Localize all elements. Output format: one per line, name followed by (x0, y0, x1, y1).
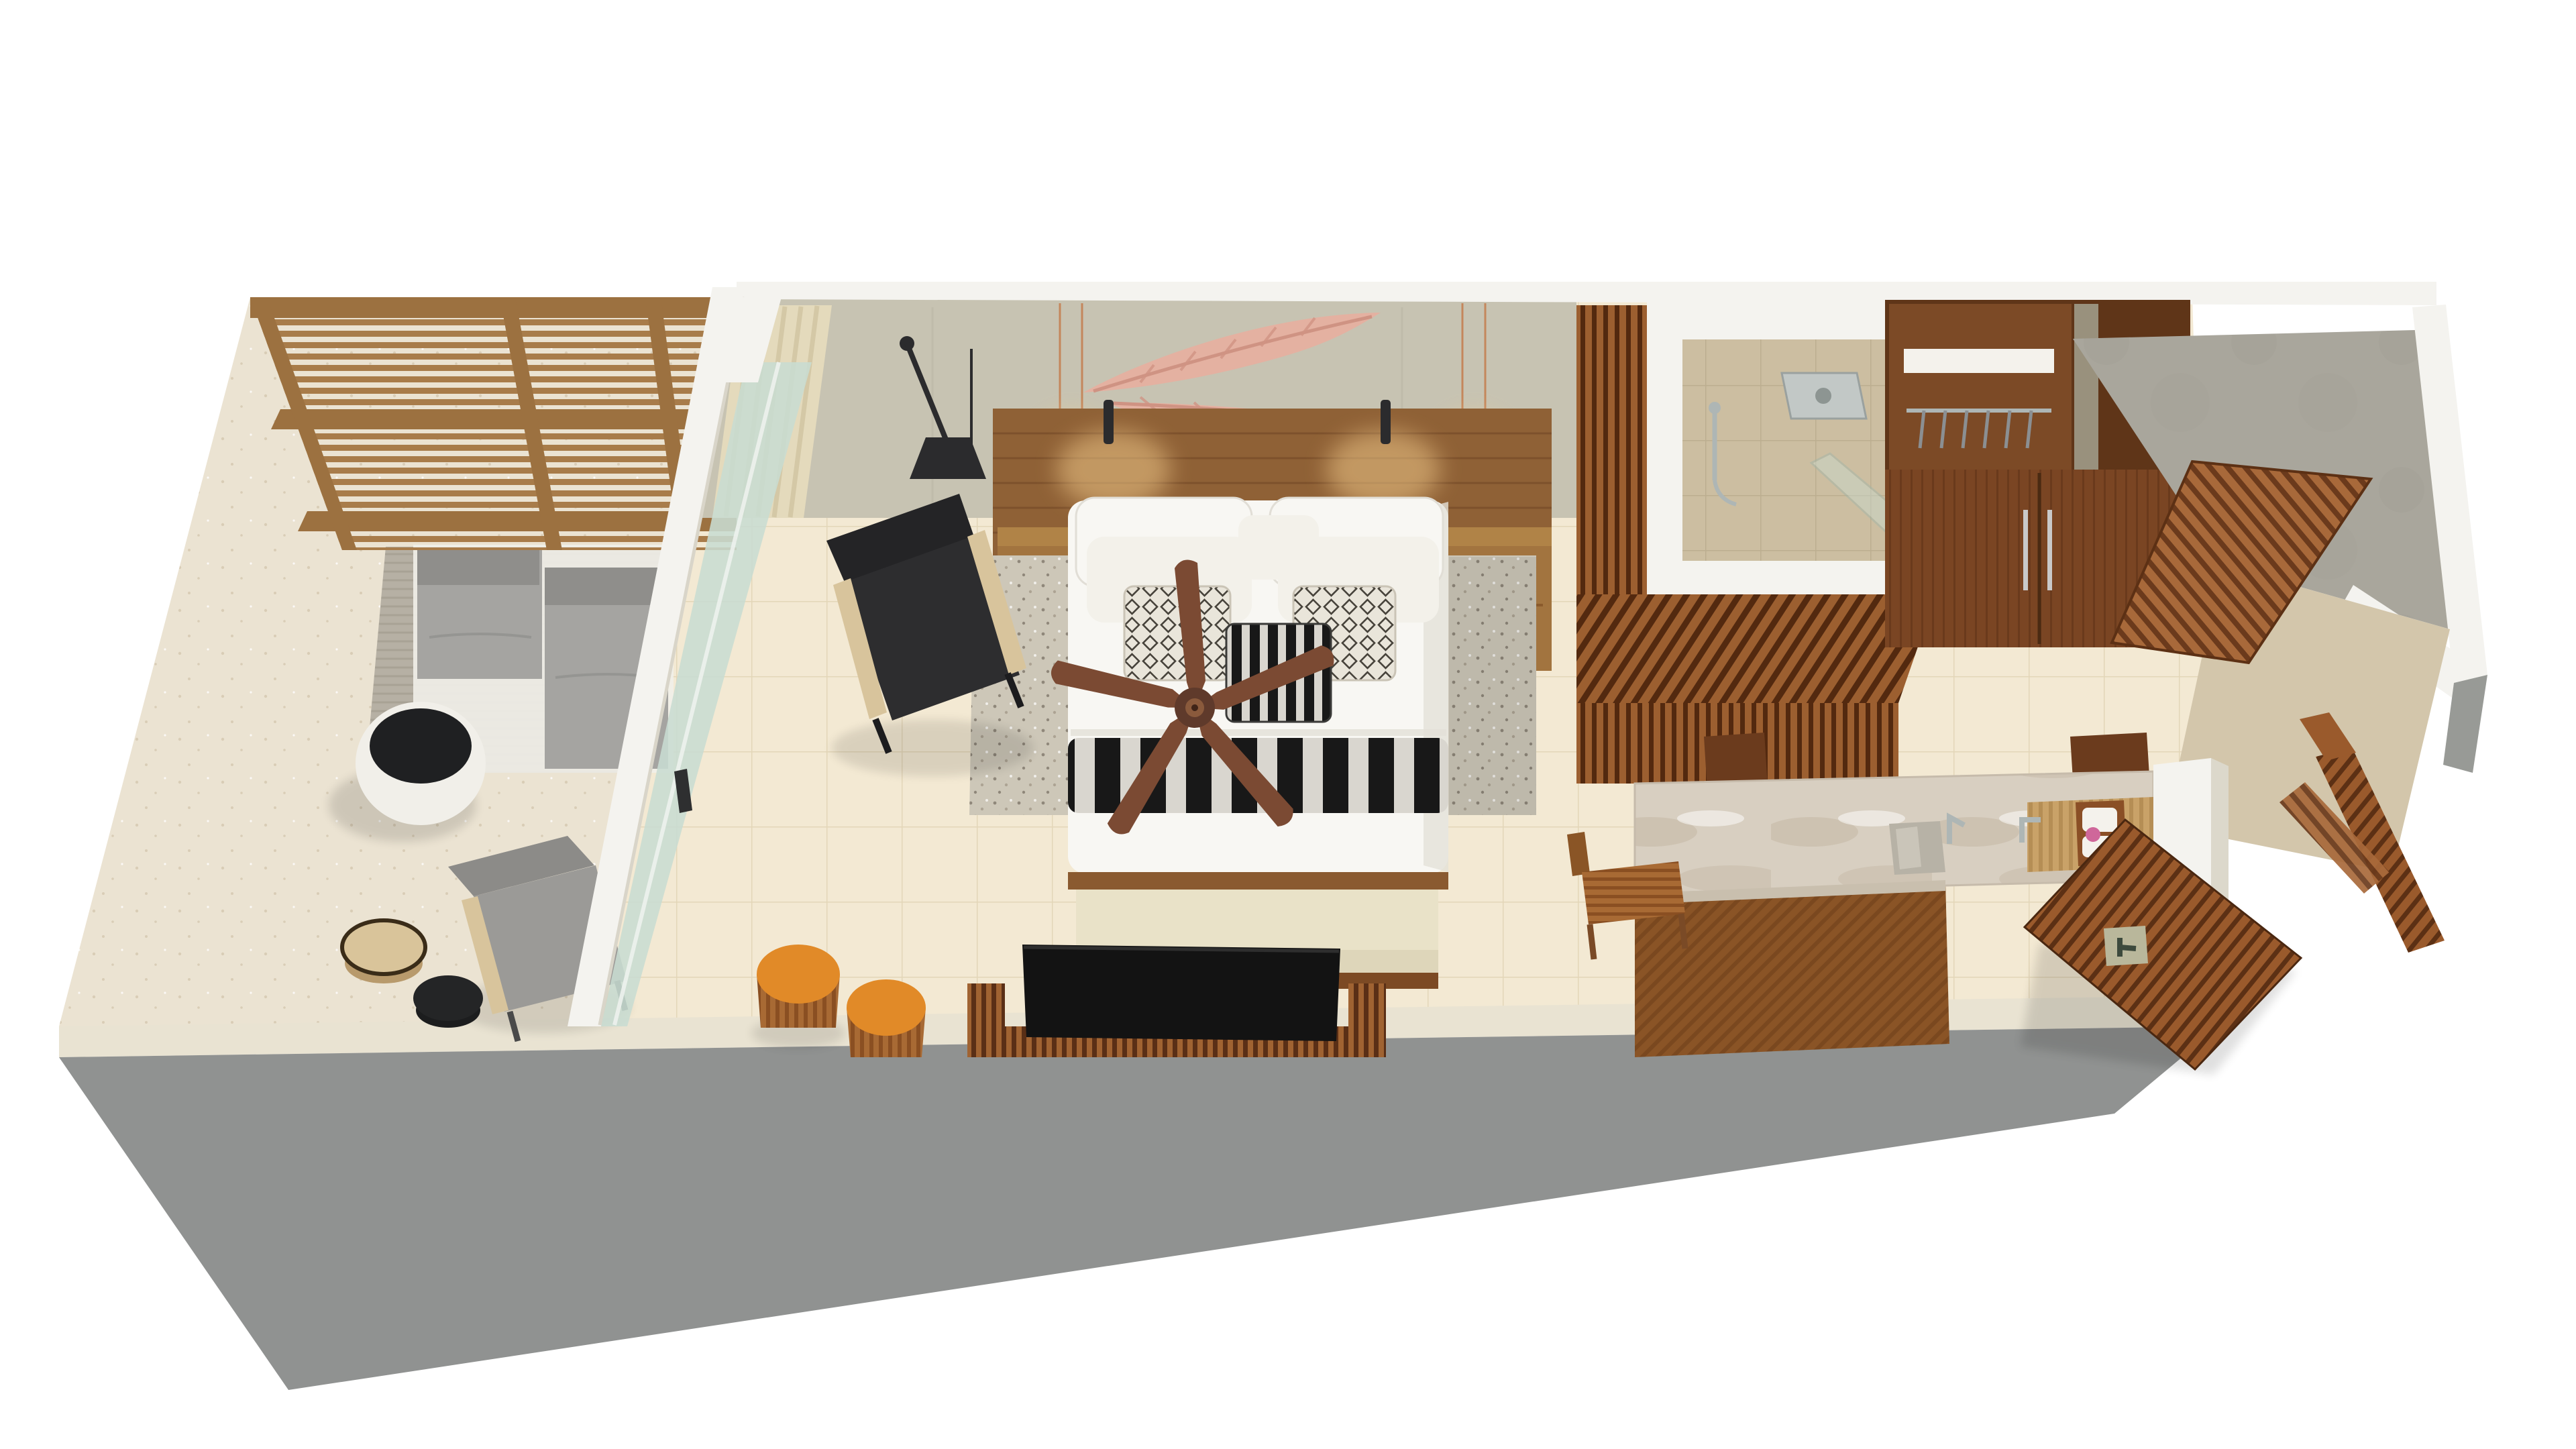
wardrobe-handle (2023, 510, 2028, 590)
pergola-beam-top (250, 297, 737, 318)
pergola-roof (250, 297, 737, 550)
slat-wall-west (1576, 305, 1652, 594)
stool-slat-seat (1582, 861, 1685, 924)
bed-cast-shadow (1449, 557, 1536, 815)
daybed-bolster-left (417, 549, 539, 585)
vessel-sink-inner (1896, 826, 1921, 869)
stool-leg (1590, 924, 1594, 959)
floorplan-stage (0, 0, 2576, 1449)
side-table-wood-top (342, 920, 425, 974)
daybed-bolster-right (545, 568, 668, 605)
patterned-cushion-left (1124, 586, 1230, 680)
stool-top (847, 979, 926, 1036)
pillow-center (1238, 515, 1319, 580)
wall-sconce (1104, 400, 1114, 444)
chair-shadow (832, 720, 1033, 776)
nightstand-top (1448, 527, 1552, 546)
rain-shower-head (1815, 388, 1831, 404)
stool-top (757, 945, 840, 1004)
suite-floorplan-render (0, 0, 2576, 1449)
rolled-towel (2082, 808, 2117, 832)
wall-sconce (1381, 400, 1391, 444)
planter-top (370, 708, 472, 784)
hand-shower-head (1709, 402, 1721, 414)
bench-cushion (1076, 890, 1438, 950)
pink-accessory (2086, 827, 2100, 842)
closet-interior (1889, 304, 2072, 470)
bed-frame-edge (1068, 872, 1448, 890)
side-table-black-top (413, 975, 483, 1021)
tv (1022, 945, 1340, 1041)
tv-console (967, 945, 1386, 1057)
slat-wall-top-face (1576, 594, 1936, 703)
vanity-end-wall-side (2211, 758, 2229, 903)
wardrobe-handle (2047, 510, 2052, 590)
closet-shelf (1904, 349, 2054, 373)
stool-leg (1681, 914, 1685, 949)
